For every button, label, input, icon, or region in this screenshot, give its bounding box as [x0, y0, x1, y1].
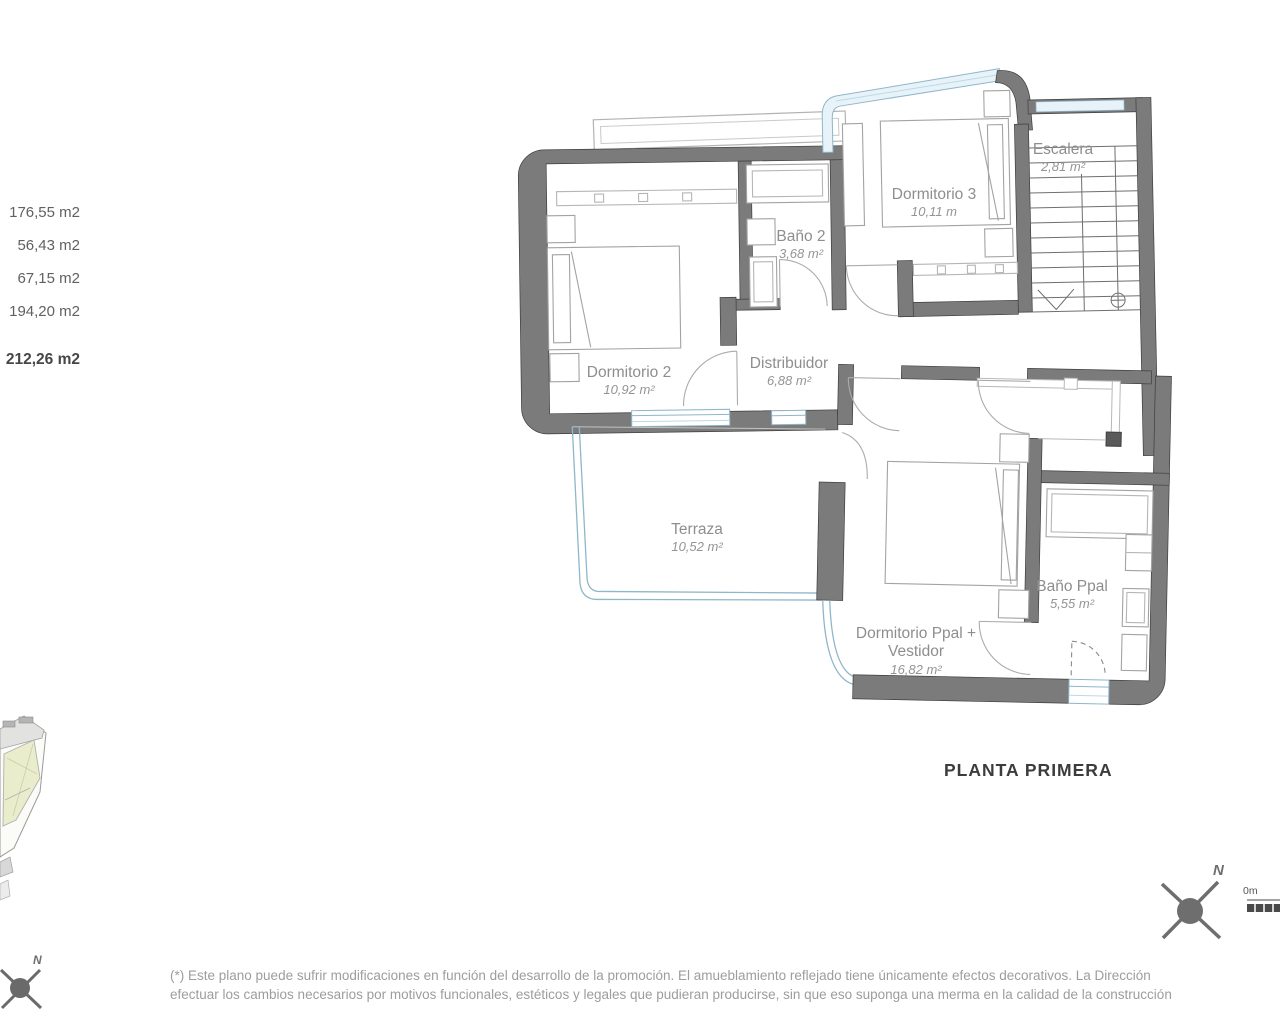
site-plan-thumbnail	[0, 716, 46, 900]
room-area: 3,68 m²	[776, 246, 825, 261]
room-label-dormitorio-ppal: Dormitorio Ppal + Vestidor 16,82 m²	[856, 625, 976, 677]
disclaimer-line: (*) Este plano puede sufrir modificacion…	[170, 966, 1280, 985]
surface-total: 212,26 m2	[6, 351, 80, 369]
room-area: 16,82 m²	[856, 662, 976, 677]
window-band	[1069, 679, 1109, 704]
surface-value: 194,20 m2	[9, 303, 80, 320]
door-arcs	[846, 265, 898, 317]
room-name: Baño 2	[776, 228, 825, 245]
wall	[817, 482, 845, 601]
room-name: Escalera	[1033, 141, 1093, 158]
surface-value: 56,43 m2	[17, 237, 80, 254]
room-area: 10,92 m²	[587, 382, 671, 397]
furniture	[546, 164, 831, 382]
roof-outline	[593, 111, 846, 150]
room-area: 2,81 m²	[1033, 159, 1093, 174]
block-bedroom3-stairs	[821, 65, 1158, 462]
room-name: Terraza	[671, 521, 723, 538]
room-area: 5,55 m²	[1036, 596, 1108, 611]
room-label-escalera: Escalera 2,81 m²	[1033, 141, 1093, 175]
room-name: Distribuidor	[750, 355, 828, 372]
room-name: Baño Ppal	[1036, 578, 1108, 595]
room-label-bano-ppal: Baño Ppal 5,55 m²	[1036, 578, 1108, 612]
room-name: Dormitorio 3	[892, 186, 976, 203]
room-name: Vestidor	[888, 643, 944, 660]
wall	[900, 300, 1018, 316]
north-label: N	[1213, 862, 1224, 879]
room-area: 10,52 m²	[671, 539, 723, 554]
room-label-bano2: Baño 2 3,68 m²	[776, 228, 825, 262]
room-label-distribuidor: Distribuidor 6,88 m²	[750, 355, 828, 389]
compass-icon	[1162, 882, 1220, 938]
wall	[1014, 124, 1032, 312]
terrace-glass	[569, 424, 826, 604]
room-name: Dormitorio Ppal +	[856, 625, 976, 642]
surface-value: 176,55 m2	[9, 204, 80, 221]
room-area: 6,88 m²	[750, 373, 828, 388]
furniture	[842, 90, 1018, 277]
north-label-small: N	[33, 953, 42, 967]
room-name: Dormitorio 2	[587, 364, 671, 381]
closet-rails	[976, 376, 1122, 446]
plan-title: PLANTA PRIMERA	[944, 760, 1113, 781]
compass-small-icon	[1, 970, 41, 1008]
window-band	[632, 408, 806, 426]
wall	[901, 366, 979, 381]
wall	[897, 260, 913, 316]
wall	[853, 675, 1069, 704]
furniture	[884, 431, 1032, 618]
surface-value: 67,15 m2	[17, 270, 80, 287]
room-label-dormitorio2: Dormitorio 2 10,92 m²	[587, 364, 671, 398]
disclaimer-line: efectuar los cambios necesarios por moti…	[170, 985, 1280, 1004]
wall	[1041, 471, 1169, 486]
disclaimer: (*) Este plano puede sufrir modificacion…	[170, 966, 1280, 1004]
door-arc-dashed	[1071, 641, 1106, 676]
wall	[720, 297, 737, 345]
room-area: 10,11 m	[892, 204, 976, 219]
room-label-terraza: Terraza 10,52 m²	[671, 521, 723, 555]
floorplan-page: 176,55 m2 56,43 m2 67,15 m2 194,20 m2 21…	[0, 0, 1280, 1024]
scale-zero-label: 0m	[1243, 885, 1258, 897]
window-band	[1036, 100, 1124, 112]
scale-bar	[1247, 900, 1280, 912]
room-label-dormitorio3: Dormitorio 3 10,11 m	[892, 186, 976, 220]
glass-corner	[821, 600, 859, 685]
